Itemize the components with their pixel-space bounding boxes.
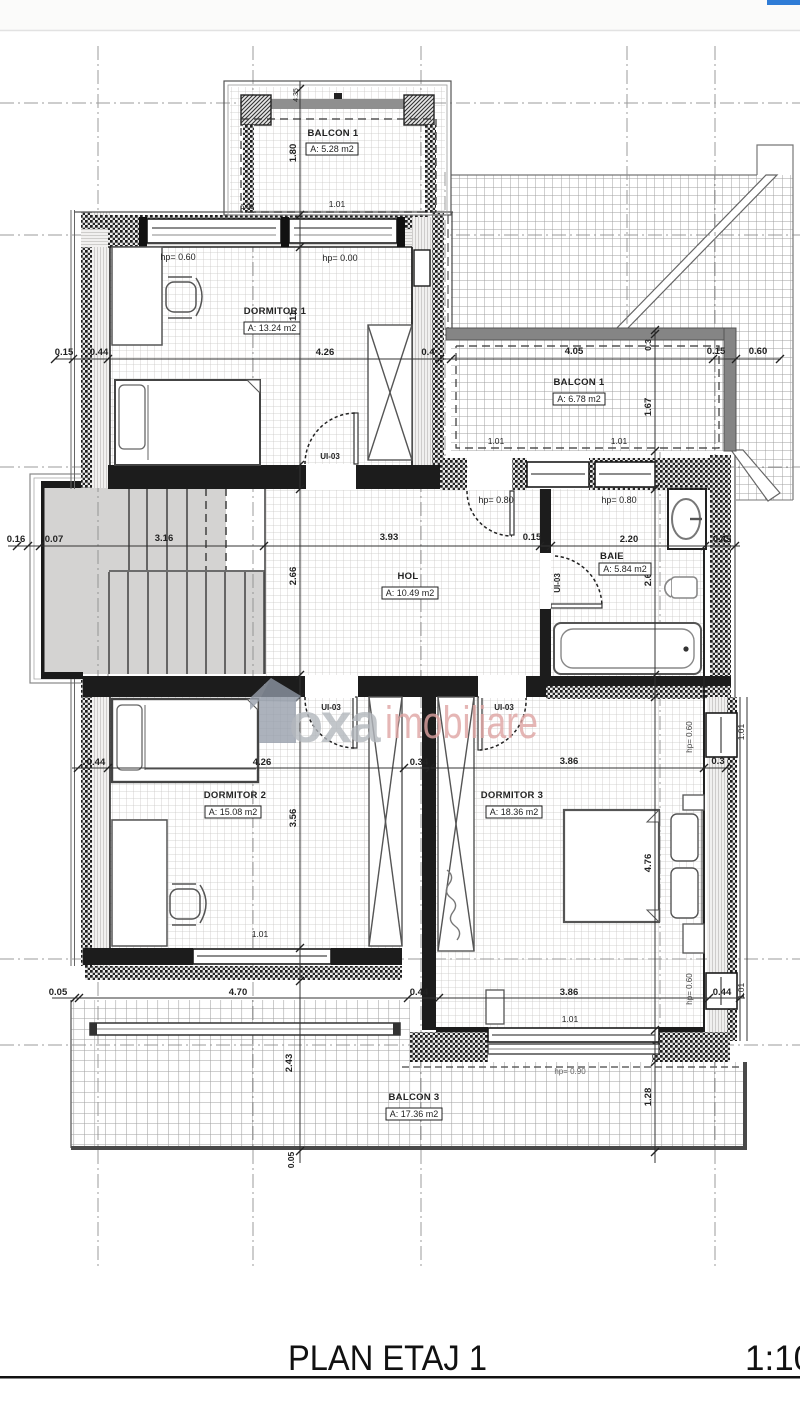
- svg-text:0.15: 0.15: [707, 346, 726, 357]
- svg-text:A: 15.08 m2: A: 15.08 m2: [209, 807, 258, 817]
- svg-text:3.93: 3.93: [380, 532, 399, 543]
- svg-text:1.67: 1.67: [643, 398, 654, 417]
- svg-text:BALCON 3: BALCON 3: [389, 1092, 440, 1103]
- svg-text:4.26: 4.26: [316, 347, 335, 358]
- svg-text:3.16: 3.16: [155, 533, 174, 544]
- svg-text:4.26: 4.26: [253, 757, 272, 768]
- svg-text:0.3: 0.3: [643, 339, 653, 351]
- svg-text:UI-03: UI-03: [320, 452, 340, 461]
- svg-text:0.05: 0.05: [286, 1151, 296, 1168]
- svg-text:1.80: 1.80: [288, 144, 299, 163]
- svg-text:1.01: 1.01: [329, 199, 346, 209]
- svg-text:4.05: 4.05: [565, 346, 584, 357]
- svg-text:UI-03: UI-03: [553, 573, 562, 593]
- svg-text:2.43: 2.43: [284, 1054, 295, 1073]
- svg-text:6.08: 6.08: [240, 204, 254, 211]
- svg-text:0.44: 0.44: [87, 757, 106, 768]
- svg-text:A: 18.36 m2: A: 18.36 m2: [490, 807, 539, 817]
- svg-text:1.01: 1.01: [252, 929, 269, 939]
- svg-text:0.16: 0.16: [7, 534, 26, 545]
- svg-text:hp= 0.60: hp= 0.60: [685, 973, 694, 1005]
- svg-text:hp= 0.60: hp= 0.60: [160, 252, 195, 262]
- svg-text:DORMITOR 3: DORMITOR 3: [481, 790, 543, 801]
- svg-text:PLAN ETAJ 1: PLAN ETAJ 1: [288, 1339, 487, 1378]
- svg-text:1.28: 1.28: [643, 1088, 654, 1107]
- svg-text:1.01: 1.01: [488, 436, 505, 446]
- svg-text:0.44: 0.44: [713, 987, 732, 998]
- svg-text:0.15: 0.15: [523, 532, 542, 543]
- svg-text:BAIE: BAIE: [600, 551, 624, 562]
- svg-text:4.35: 4.35: [293, 88, 300, 102]
- svg-text:BALCON 1: BALCON 1: [308, 128, 359, 139]
- svg-text:0.07: 0.07: [45, 534, 64, 545]
- svg-text:A: 6.78 m2: A: 6.78 m2: [557, 394, 601, 404]
- svg-text:0.4: 0.4: [421, 347, 435, 358]
- svg-text:1.01: 1.01: [562, 1014, 579, 1024]
- svg-text:4.70: 4.70: [229, 987, 248, 998]
- svg-text:1.01: 1.01: [611, 436, 628, 446]
- svg-text:0.3: 0.3: [711, 756, 724, 767]
- svg-text:A: 13.24 m2: A: 13.24 m2: [248, 323, 297, 333]
- svg-text:0.05: 0.05: [49, 987, 68, 998]
- svg-text:BALCON 1: BALCON 1: [554, 377, 605, 388]
- svg-text:A: 5.28 m2: A: 5.28 m2: [310, 144, 354, 154]
- svg-text:4.76: 4.76: [643, 854, 654, 873]
- svg-text:2.20: 2.20: [620, 534, 639, 545]
- svg-text:3.86: 3.86: [560, 756, 579, 767]
- svg-text:1:10: 1:10: [745, 1339, 800, 1378]
- svg-text:A: 17.36 m2: A: 17.36 m2: [390, 1109, 439, 1119]
- svg-text:hp= 0.90: hp= 0.90: [554, 1067, 586, 1076]
- svg-text:hp= 0.00: hp= 0.00: [322, 253, 357, 263]
- svg-text:3.56: 3.56: [288, 809, 299, 828]
- svg-text:1.01: 1.01: [736, 723, 746, 740]
- svg-text:0.15: 0.15: [55, 347, 74, 358]
- svg-text:DORMITOR 2: DORMITOR 2: [204, 790, 266, 801]
- svg-text:oxa: oxa: [289, 691, 381, 754]
- svg-text:DORMITOR 1: DORMITOR 1: [244, 306, 307, 317]
- svg-text:imobiliare: imobiliare: [385, 697, 538, 748]
- svg-text:1.01: 1.01: [736, 982, 746, 999]
- svg-text:hp= 0.80: hp= 0.80: [478, 495, 513, 505]
- svg-text:0.60: 0.60: [749, 346, 768, 357]
- svg-text:0.34: 0.34: [410, 757, 429, 768]
- svg-text:0.44: 0.44: [90, 347, 109, 358]
- svg-text:0.45: 0.45: [713, 534, 732, 545]
- svg-text:3.86: 3.86: [560, 987, 579, 998]
- svg-text:HOL: HOL: [398, 571, 419, 582]
- svg-text:hp= 0.80: hp= 0.80: [601, 495, 636, 505]
- svg-text:hp= 0.60: hp= 0.60: [685, 721, 694, 753]
- svg-text:A: 5.84 m2: A: 5.84 m2: [603, 564, 647, 574]
- svg-text:A: 10.49 m2: A: 10.49 m2: [386, 588, 435, 598]
- svg-text:2.66: 2.66: [288, 567, 299, 586]
- svg-text:0.44: 0.44: [410, 987, 429, 998]
